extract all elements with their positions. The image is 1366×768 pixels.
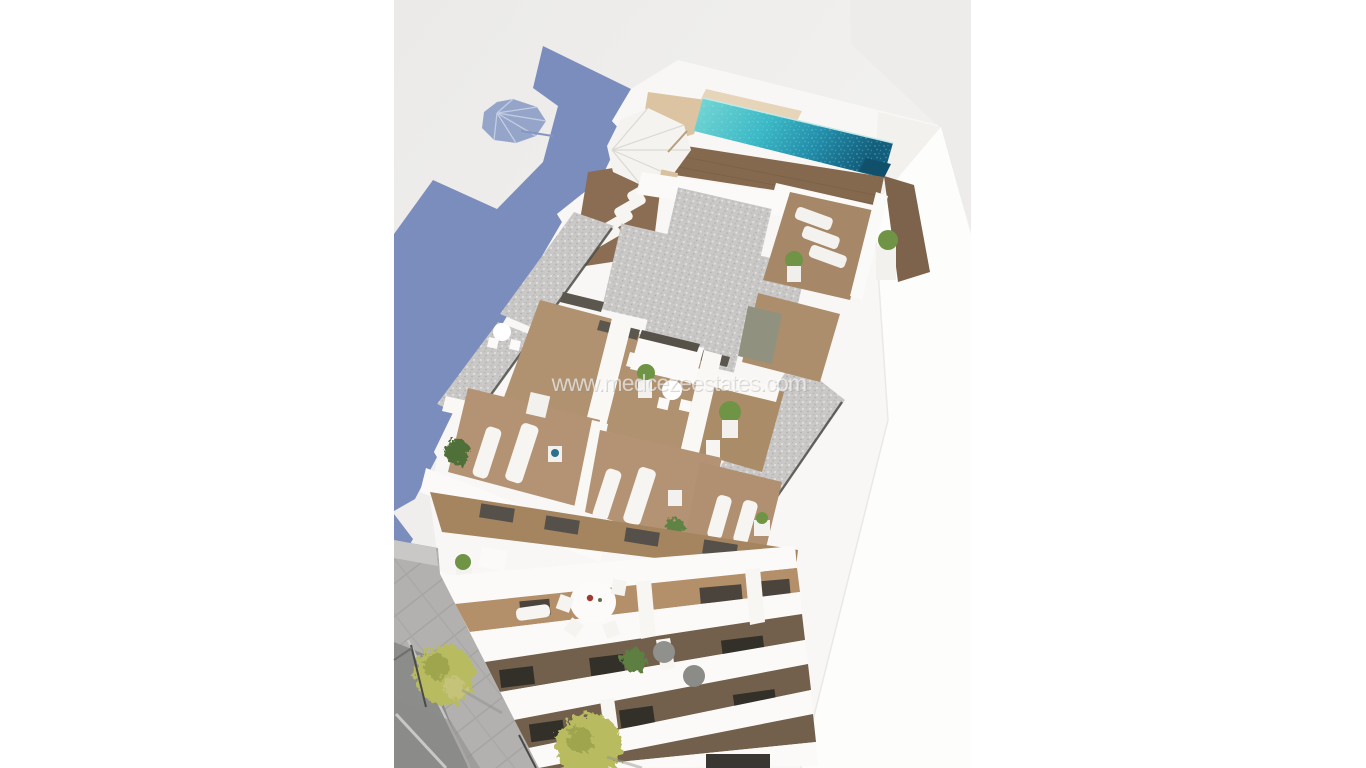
- svg-text:www.medcezeestates.com: www.medcezeestates.com: [551, 370, 807, 396]
